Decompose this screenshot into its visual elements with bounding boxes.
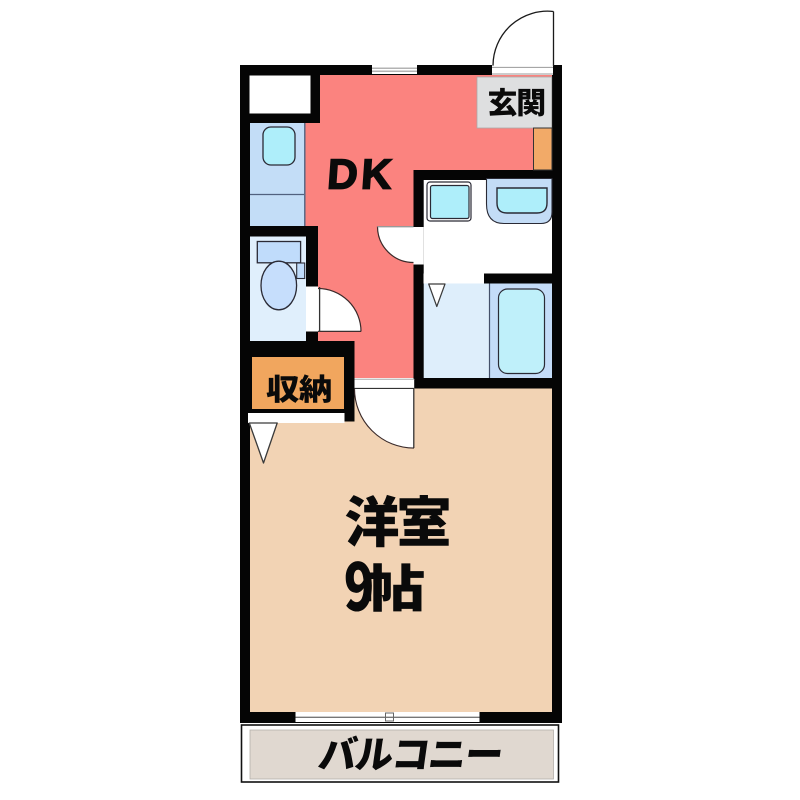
svg-text:DK: DK [326, 150, 397, 197]
